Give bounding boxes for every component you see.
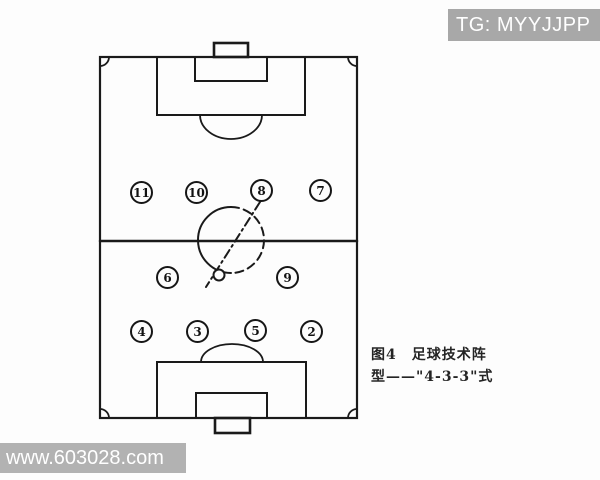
caption-line-2: 型——"4-3-3"式: [371, 366, 511, 388]
player-marker-4: 4: [130, 320, 153, 343]
player-marker-11: 11: [130, 181, 153, 204]
player-number: 9: [283, 272, 291, 284]
player-number: 6: [163, 272, 171, 284]
figure-caption: 图4 足球技术阵 型——"4-3-3"式: [371, 344, 511, 388]
player-number: 10: [188, 187, 205, 199]
penalty-arc-bottom: [201, 344, 263, 362]
player-marker-7: 7: [309, 179, 332, 202]
field-boundary: [100, 57, 357, 418]
player-number: 8: [257, 185, 265, 197]
player-marker-10: 10: [185, 181, 208, 204]
scanned-figure-page: 11 10 8 7 6 9 4 3 5 2 图4 足球技术阵 型——"4-3-3…: [0, 0, 600, 480]
goal-area-top: [195, 57, 267, 81]
goal-bottom: [215, 418, 250, 433]
ball-icon: [214, 270, 225, 281]
player-number: 5: [251, 325, 259, 337]
player-marker-6: 6: [156, 266, 179, 289]
player-number: 2: [307, 326, 315, 338]
corner-arc-bottom-left: [100, 409, 109, 418]
player-number: 7: [316, 185, 324, 197]
goal-top: [214, 43, 248, 57]
corner-arc-top-left: [100, 57, 109, 66]
pitch-diagram: [0, 0, 600, 480]
player-marker-3: 3: [186, 320, 209, 343]
player-number: 11: [133, 187, 150, 199]
caption-line-1: 图4 足球技术阵: [371, 344, 511, 366]
penalty-area-top: [157, 57, 305, 115]
goal-area-bottom: [196, 393, 267, 418]
penalty-arc-top: [200, 115, 262, 139]
player-number: 4: [137, 326, 145, 338]
corner-arc-bottom-right: [348, 409, 357, 418]
website-watermark: www.603028.com: [0, 443, 186, 473]
telegram-watermark: TG: MYYJJPP: [448, 9, 600, 41]
player-marker-9: 9: [276, 266, 299, 289]
penalty-area-bottom: [157, 362, 306, 418]
corner-arc-top-right: [348, 57, 357, 66]
player-marker-2: 2: [300, 320, 323, 343]
player-number: 3: [193, 326, 201, 338]
player-marker-8: 8: [250, 179, 273, 202]
player-marker-5: 5: [244, 319, 267, 342]
